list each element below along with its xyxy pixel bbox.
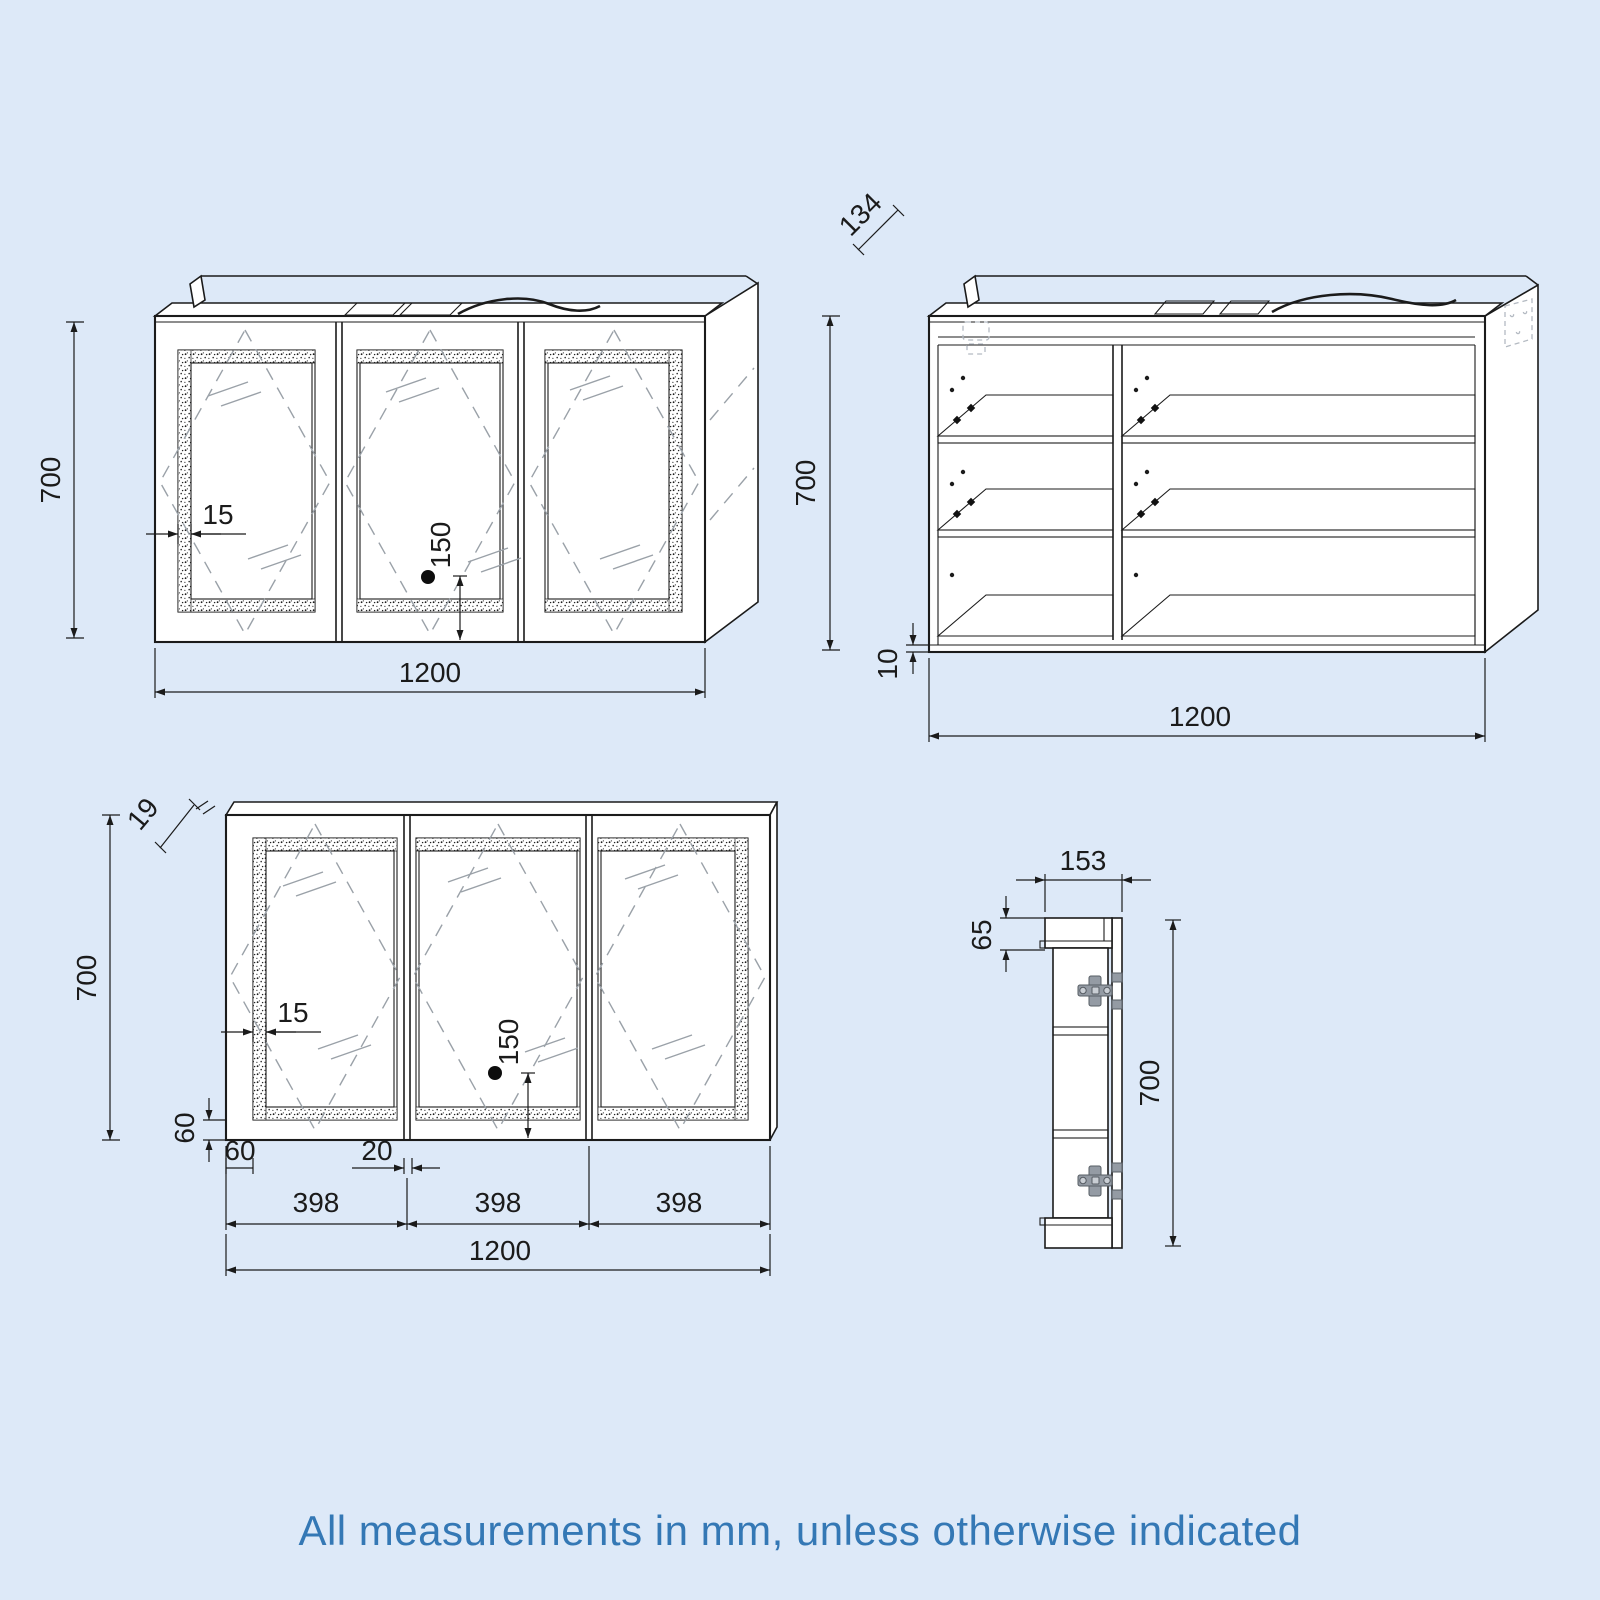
dim-label-sensor-a: 150 (425, 522, 456, 569)
dim-label-height-c: 700 (71, 955, 102, 1002)
top-section (1045, 918, 1112, 948)
dim-label-door-b: 398 (475, 1187, 522, 1218)
dim-label-sensor-c: 150 (493, 1019, 524, 1066)
dim-label-width-a: 1200 (399, 657, 461, 688)
dim-label-door-c: 398 (656, 1187, 703, 1218)
dim-label-bottom-b: 10 (872, 648, 903, 679)
dim-label-top-section: 65 (966, 919, 997, 950)
sensor-dot (421, 570, 435, 584)
dim-label-width-b: 1200 (1169, 701, 1231, 732)
technical-drawing: 700 1200 15 150 (0, 0, 1600, 1600)
top-edge (226, 802, 777, 815)
sensor-dot (488, 1066, 502, 1080)
side-panel (705, 283, 758, 642)
bottom-section (1045, 1218, 1112, 1248)
dim-label-depth-d: 153 (1060, 845, 1107, 876)
carcass-front (929, 316, 1485, 652)
cabinet-front (226, 815, 770, 1140)
technical-drawing-page: 700 1200 15 150 (0, 0, 1600, 1600)
measurements-note: All measurements in mm, unless otherwise… (298, 1507, 1301, 1554)
dim-label-height-d: 700 (1134, 1060, 1165, 1107)
dim-label-frame-a: 15 (202, 499, 233, 530)
dim-label-width-c: 1200 (469, 1235, 531, 1266)
dim-label-mirror-bottom: 60 (169, 1112, 200, 1143)
dim-label-height-b: 700 (790, 460, 821, 507)
cabinet-front (155, 316, 705, 642)
dim-label-height-a: 700 (35, 457, 66, 504)
dim-label-frame-c: 15 (277, 997, 308, 1028)
side-panel (1485, 285, 1538, 652)
dim-mirror-side-c: 60 (224, 1135, 255, 1174)
dim-label-door-a: 398 (293, 1187, 340, 1218)
page-background (0, 0, 1600, 1600)
dim-label-mirror-gap: 20 (361, 1135, 392, 1166)
top-panel (155, 303, 722, 316)
dim-label-mirror-side: 60 (224, 1135, 255, 1166)
